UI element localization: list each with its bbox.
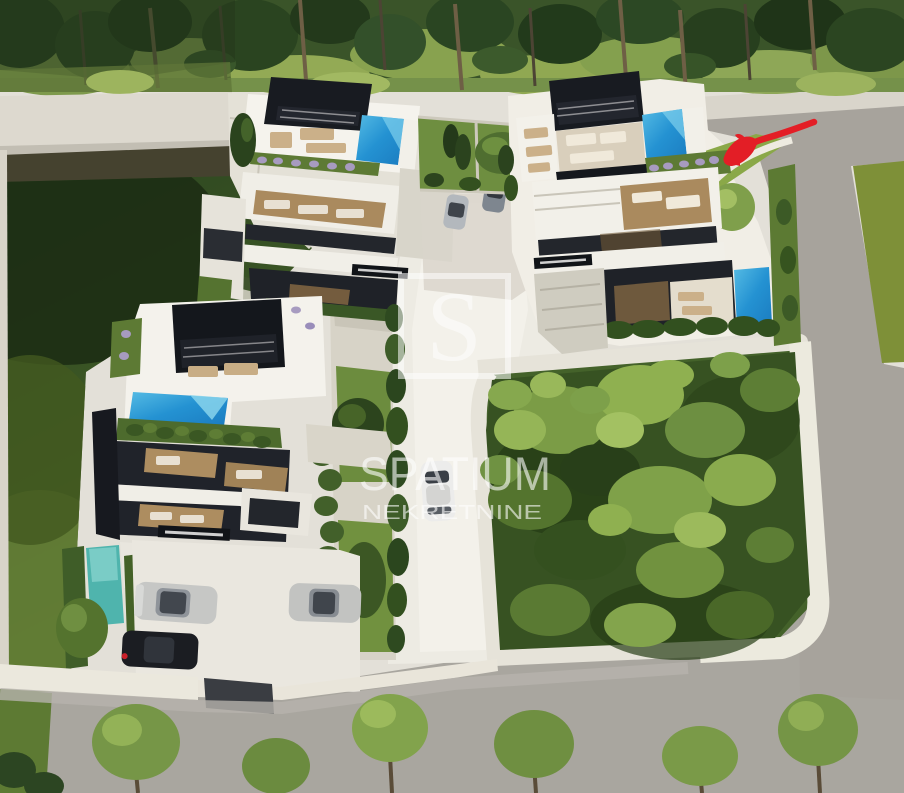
svg-text:S: S <box>426 271 482 382</box>
svg-text:NEKRETNINE: NEKRETNINE <box>362 502 542 524</box>
svg-text:SPATIUM: SPATIUM <box>359 447 551 500</box>
